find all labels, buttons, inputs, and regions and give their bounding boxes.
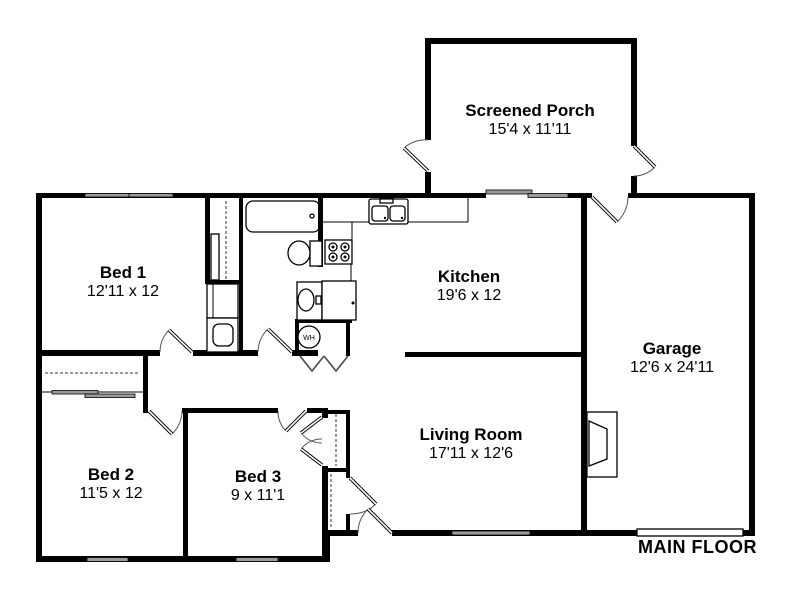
porch-right-door [634, 146, 655, 176]
room-label-garage: Garage 12'6 x 24'11 [630, 339, 714, 377]
bed-1-window-right [129, 194, 173, 198]
fireplace [587, 412, 617, 477]
garage-dimensions: 12'6 x 24'11 [630, 358, 714, 377]
bed-2-dimensions: 11'5 x 12 [79, 484, 142, 503]
washer [207, 284, 238, 318]
room-label-kitchen: Kitchen 19'6 x 12 [437, 267, 501, 305]
room-label-living-room: Living Room 17'11 x 12'6 [420, 425, 523, 463]
living-room-name: Living Room [420, 425, 523, 444]
room-label-bed-3: Bed 3 9 x 11'1 [231, 467, 285, 505]
refrigerator [322, 281, 356, 320]
dryer [207, 318, 238, 352]
bed-2-name: Bed 2 [79, 465, 142, 484]
room-label-screened-porch: Screened Porch 15'4 x 11'11 [465, 101, 594, 139]
floor-plan: WH Screened Porch 15'4 x 11'11 Bed 1 [0, 0, 800, 600]
bed-2-door [149, 411, 182, 434]
garage-name: Garage [630, 339, 714, 358]
entry-closet-door [350, 478, 376, 514]
bed-3-name: Bed 3 [231, 467, 285, 486]
bed-2-closet-sliding-doors [42, 391, 143, 398]
bed-3-closet-doors [301, 417, 322, 465]
bathroom-door [258, 329, 292, 352]
bed-1-closet-door-leaf [211, 234, 219, 280]
kitchen-sink [369, 198, 408, 224]
bathtub [246, 201, 320, 232]
room-label-bed-1: Bed 1 12'11 x 12 [87, 263, 159, 301]
floor-title: MAIN FLOOR [638, 537, 757, 558]
water-heater-closet-bifold-doors [300, 356, 348, 371]
bed-3-dimensions: 9 x 11'1 [231, 486, 285, 505]
bed-1-window-left [85, 194, 129, 198]
living-room-window [452, 531, 530, 535]
bed-3-window [236, 558, 278, 562]
garage-overhead-door [637, 529, 743, 536]
living-room-dimensions: 17'11 x 12'6 [420, 444, 523, 463]
water-heater: WH [298, 326, 320, 348]
bed-1-name: Bed 1 [87, 263, 159, 282]
garage-entry-door [592, 197, 628, 222]
bed-1-door [160, 330, 192, 352]
porch-left-door [404, 140, 428, 171]
kitchen-dimensions: 19'6 x 12 [437, 286, 501, 305]
room-label-bed-2: Bed 2 11'5 x 12 [79, 465, 142, 503]
bed-3-door [278, 411, 306, 431]
toilet [288, 241, 322, 266]
front-door [358, 509, 392, 533]
kitchen-name: Kitchen [437, 267, 501, 286]
stove [325, 240, 352, 264]
bed-2-window [87, 558, 128, 562]
bed-1-dimensions: 12'11 x 12 [87, 282, 159, 301]
screened-porch-dimensions: 15'4 x 11'11 [465, 120, 594, 139]
screened-porch-name: Screened Porch [465, 101, 594, 120]
sliding-glass-door [486, 190, 568, 198]
water-heater-label: WH [303, 335, 315, 342]
bathroom-vanity-sink [297, 282, 322, 320]
